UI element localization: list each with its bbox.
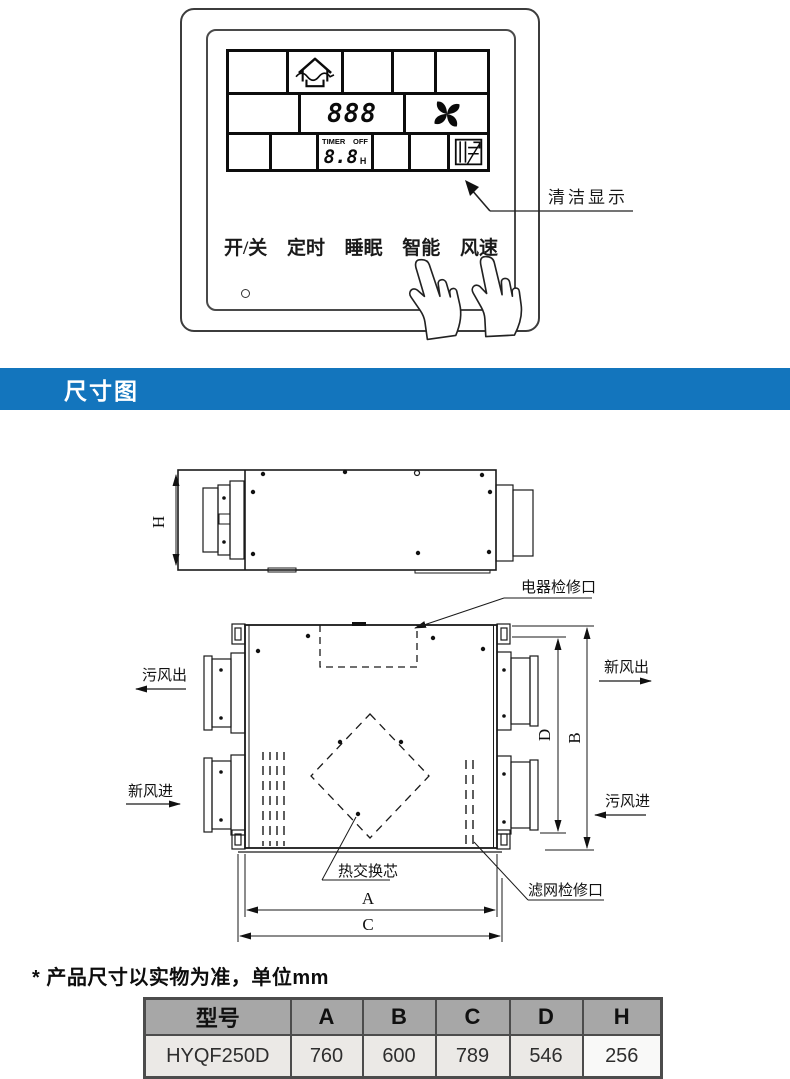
spec-c: 789 bbox=[436, 1035, 510, 1078]
dim-b-label: B bbox=[565, 732, 584, 743]
electrical-access-callout: 电器检修口 bbox=[415, 579, 596, 628]
spec-header-d: D bbox=[510, 999, 583, 1036]
lcd-cell bbox=[272, 135, 316, 169]
electrical-access-label: 电器检修口 bbox=[521, 579, 596, 596]
fan-icon bbox=[431, 98, 463, 130]
section-banner: 尺寸图 bbox=[0, 368, 790, 410]
timer-unit: H bbox=[360, 156, 367, 166]
dim-d: D bbox=[512, 637, 566, 833]
fresh-air-in-label: 新风进 bbox=[128, 783, 173, 800]
section-title: 尺寸图 bbox=[64, 372, 139, 406]
callout-leader bbox=[455, 178, 640, 223]
lcd-cell-digits: 888 bbox=[301, 95, 403, 132]
lcd-cell bbox=[394, 52, 434, 92]
timer-captions: TIMER OFF bbox=[322, 137, 368, 146]
lcd-cell bbox=[229, 95, 298, 132]
spec-a: 760 bbox=[291, 1035, 363, 1078]
spec-header-model: 型号 bbox=[145, 999, 291, 1036]
dim-h-label: H bbox=[149, 516, 168, 528]
lcd-cell bbox=[411, 135, 447, 169]
lcd-cell-mode bbox=[289, 52, 341, 92]
timer-button-label: 定时 bbox=[287, 233, 325, 260]
dim-c-label: C bbox=[362, 915, 373, 934]
dirty-air-in-label: 污风进 bbox=[605, 793, 650, 810]
lcd-cell-clean bbox=[450, 135, 487, 169]
spec-table-value-row: HYQF250D 760 600 789 546 256 bbox=[145, 1035, 662, 1078]
heat-core-label: 热交换芯 bbox=[338, 862, 398, 880]
indicator-led bbox=[241, 289, 250, 298]
lcd-cell-fan bbox=[406, 95, 487, 132]
house-ventilation-icon bbox=[294, 54, 336, 90]
spec-model: HYQF250D bbox=[145, 1035, 291, 1078]
timer-label: TIMER bbox=[322, 137, 345, 146]
lcd-cell-timer: TIMER OFF 8.8 H bbox=[319, 135, 371, 169]
filter-access-label: 滤网检修口 bbox=[528, 882, 603, 899]
spec-table-header-row: 型号 A B C D H bbox=[145, 999, 662, 1036]
pointing-hand-icon bbox=[464, 252, 530, 339]
spec-b: 600 bbox=[363, 1035, 436, 1078]
filter-access-callout: 滤网检修口 bbox=[474, 842, 604, 900]
side-view: H bbox=[149, 470, 533, 573]
lcd-cell bbox=[374, 135, 408, 169]
dimension-note: * 产品尺寸以实物为准，单位mm bbox=[32, 961, 329, 990]
sleep-button-label: 睡眠 bbox=[345, 233, 383, 260]
spec-h: 256 bbox=[583, 1035, 662, 1078]
lcd-cell bbox=[437, 52, 487, 92]
lcd-display: 888 TIMER OFF bbox=[226, 49, 490, 172]
lcd-row-2: 888 bbox=[229, 95, 487, 132]
lcd-row-1 bbox=[229, 52, 487, 92]
callout-arrowhead bbox=[465, 180, 479, 196]
fresh-air-out-label: 新风出 bbox=[604, 659, 649, 676]
spec-table: 型号 A B C D H HYQF250D 760 600 789 546 25… bbox=[143, 997, 663, 1079]
spec-d: 546 bbox=[510, 1035, 583, 1078]
spec-header-c: C bbox=[436, 999, 510, 1036]
dimension-drawing: H 电器检修口 bbox=[0, 430, 790, 950]
lcd-row-3: TIMER OFF 8.8 H bbox=[229, 135, 487, 169]
spec-header-b: B bbox=[363, 999, 436, 1036]
mode-digits: 888 bbox=[327, 99, 377, 129]
clean-indicator-icon bbox=[454, 137, 484, 167]
spec-header-a: A bbox=[291, 999, 363, 1036]
power-button-label: 开/关 bbox=[224, 233, 267, 260]
timer-value-wrap: 8.8 H bbox=[324, 146, 367, 168]
dirty-air-out-label: 污风出 bbox=[142, 667, 187, 684]
top-view bbox=[204, 622, 538, 852]
dim-d-label: D bbox=[535, 729, 554, 741]
remote-controller-panel: 888 TIMER OFF bbox=[180, 8, 540, 332]
timer-off-label: OFF bbox=[353, 137, 368, 146]
timer-digits: 8.8 bbox=[324, 146, 358, 168]
lcd-cell bbox=[229, 135, 269, 169]
lcd-cell bbox=[229, 52, 286, 92]
pointing-hand-icon bbox=[398, 252, 471, 344]
dim-a-label: A bbox=[362, 889, 375, 908]
spec-header-h: H bbox=[583, 999, 662, 1036]
lcd-cell bbox=[344, 52, 391, 92]
